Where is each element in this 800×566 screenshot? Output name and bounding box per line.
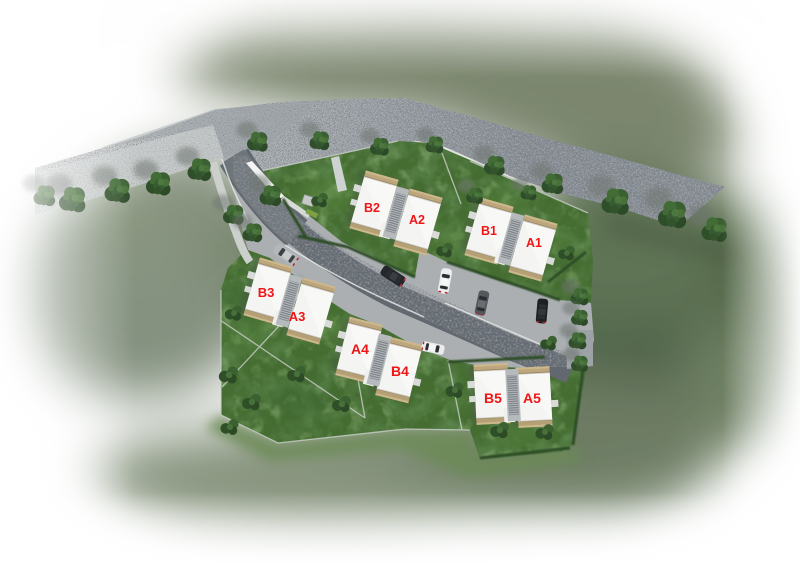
- svg-text:B1: B1: [481, 224, 497, 238]
- svg-text:A4: A4: [351, 341, 369, 357]
- svg-text:A3: A3: [289, 309, 306, 324]
- svg-text:A2: A2: [409, 213, 425, 227]
- svg-text:B4: B4: [391, 363, 409, 379]
- svg-text:B5: B5: [484, 390, 502, 406]
- svg-text:A5: A5: [523, 390, 541, 406]
- svg-text:B2: B2: [364, 201, 380, 215]
- svg-text:B3: B3: [258, 285, 275, 300]
- svg-text:A1: A1: [526, 236, 542, 250]
